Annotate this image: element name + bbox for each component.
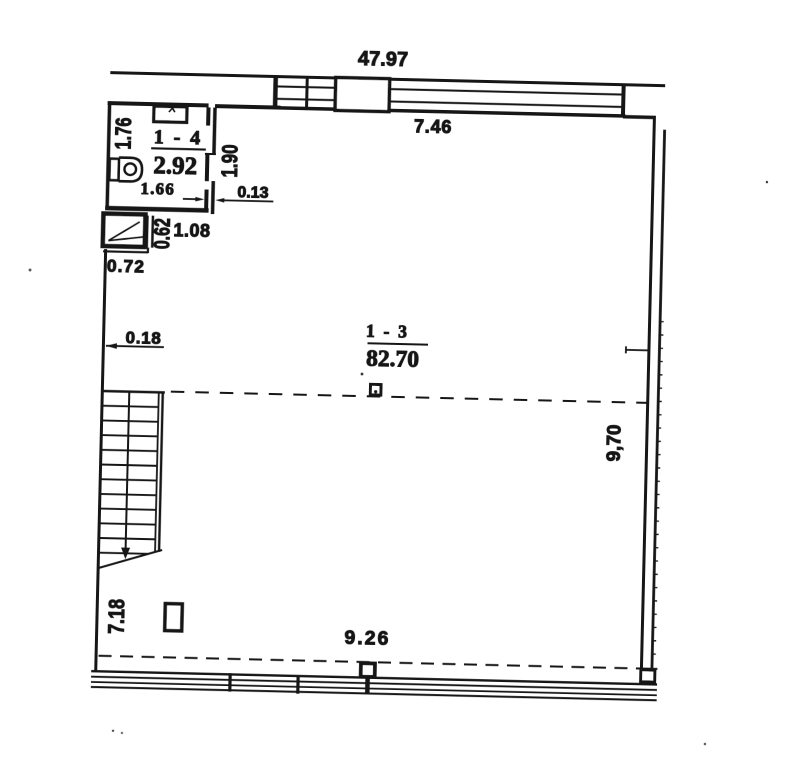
svg-text:1 - 4: 1 - 4	[154, 126, 203, 149]
svg-text:1.90: 1.90	[217, 144, 243, 178]
svg-text:1.66: 1.66	[140, 179, 175, 199]
svg-text:0.72: 0.72	[107, 256, 146, 277]
svg-text:2.92: 2.92	[153, 152, 197, 180]
svg-text:47.97: 47.97	[358, 48, 409, 71]
svg-text:1.76: 1.76	[111, 117, 137, 150]
svg-text:7.46: 7.46	[414, 116, 453, 137]
svg-text:7.18: 7.18	[104, 599, 130, 635]
svg-text:1 - 3: 1 - 3	[366, 321, 410, 342]
svg-text:0.13: 0.13	[237, 184, 269, 202]
svg-text:0.62: 0.62	[149, 218, 175, 250]
svg-text:9.26: 9.26	[344, 627, 390, 650]
svg-text:9,70: 9,70	[604, 424, 626, 461]
svg-text:82.70: 82.70	[366, 346, 419, 373]
svg-text:1.08: 1.08	[173, 220, 211, 241]
svg-text:0.18: 0.18	[125, 328, 161, 348]
